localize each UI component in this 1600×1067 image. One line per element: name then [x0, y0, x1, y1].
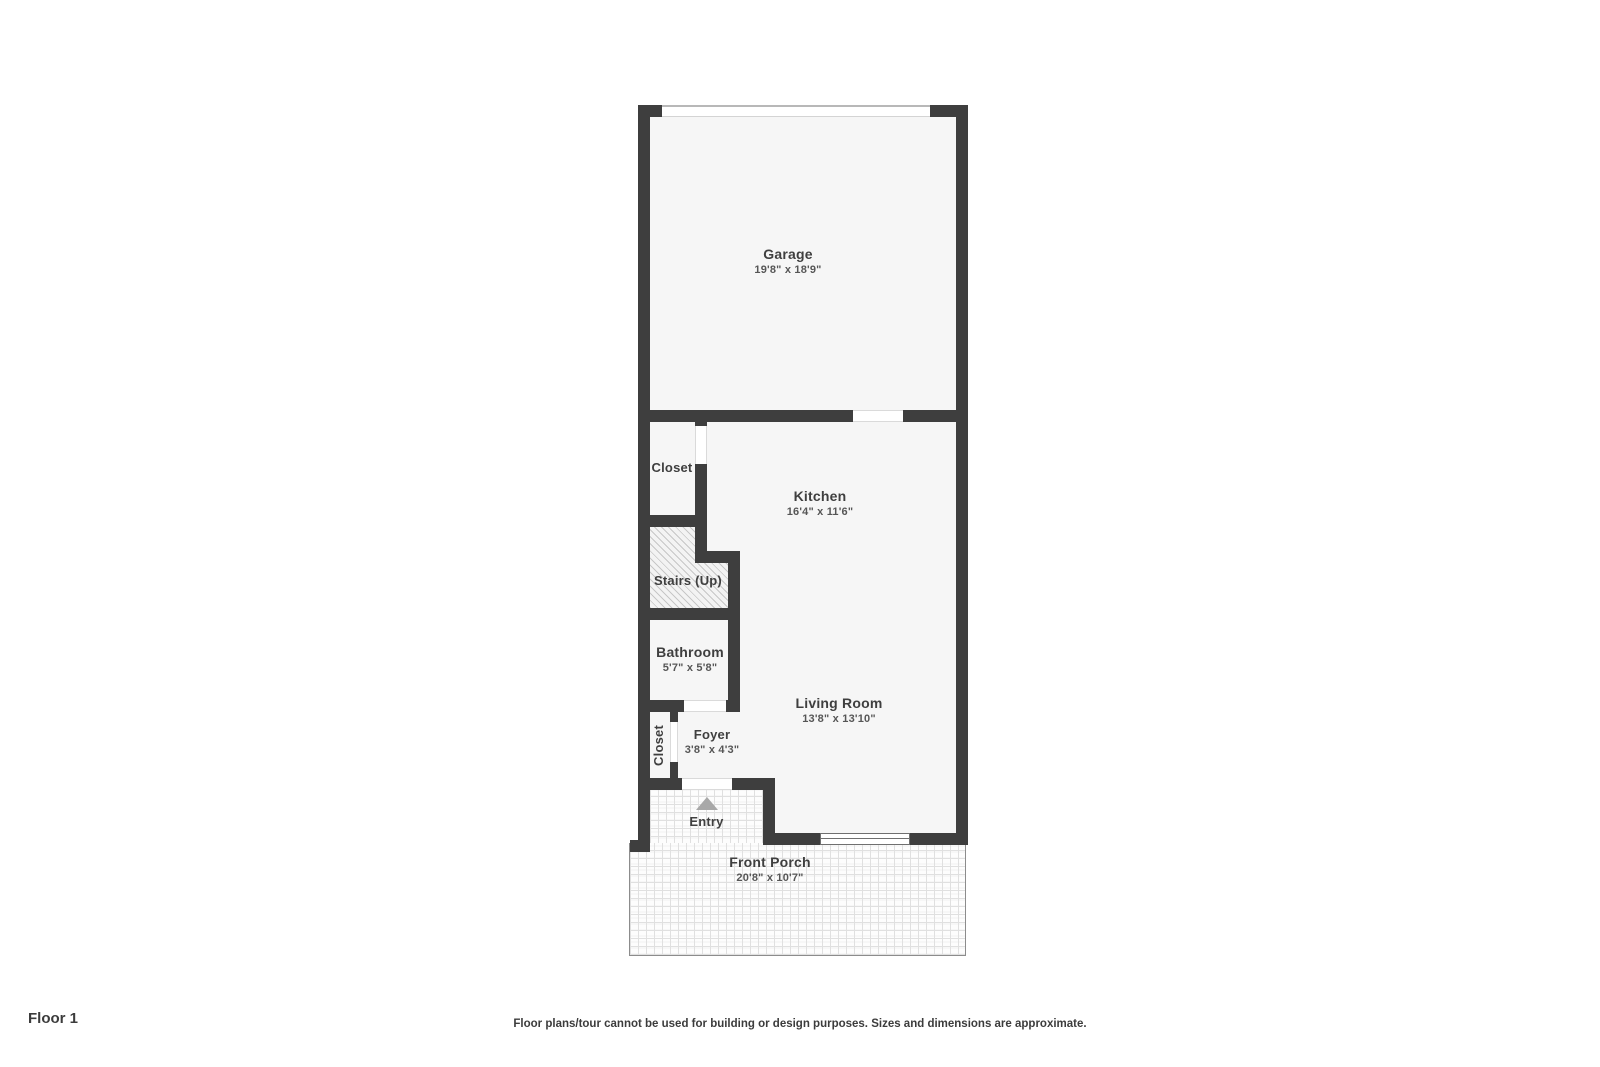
disclaimer-text: Floor plans/tour cannot be used for buil…: [0, 1018, 1600, 1030]
entry-paver-area: [650, 788, 763, 845]
bathroom-top-wall: [638, 608, 740, 620]
upper-closet-doorway: [695, 426, 707, 464]
living-room-window: [820, 833, 910, 845]
building-interior: [638, 105, 968, 845]
bathroom-doorway: [684, 700, 726, 712]
outer-wall-left-end-jog: [630, 840, 650, 852]
bathroom-right-wall: [728, 608, 740, 712]
garage-kitchen-divider-wall: [638, 410, 968, 422]
outer-wall-right: [956, 105, 968, 845]
garage-kitchen-doorway: [853, 410, 903, 422]
stairs-top-wall: [638, 515, 707, 527]
outer-wall-left: [638, 105, 650, 852]
garage-door-opening: [662, 105, 930, 117]
garage-top-wall-left: [638, 105, 662, 117]
front-door-opening: [682, 778, 732, 790]
front-porch-area: [629, 843, 966, 956]
floor-plan-canvas: Garage 19'8" x 18'9" Closet Kitchen 16'4…: [0, 0, 1600, 1067]
lower-closet-doorway: [670, 722, 678, 762]
